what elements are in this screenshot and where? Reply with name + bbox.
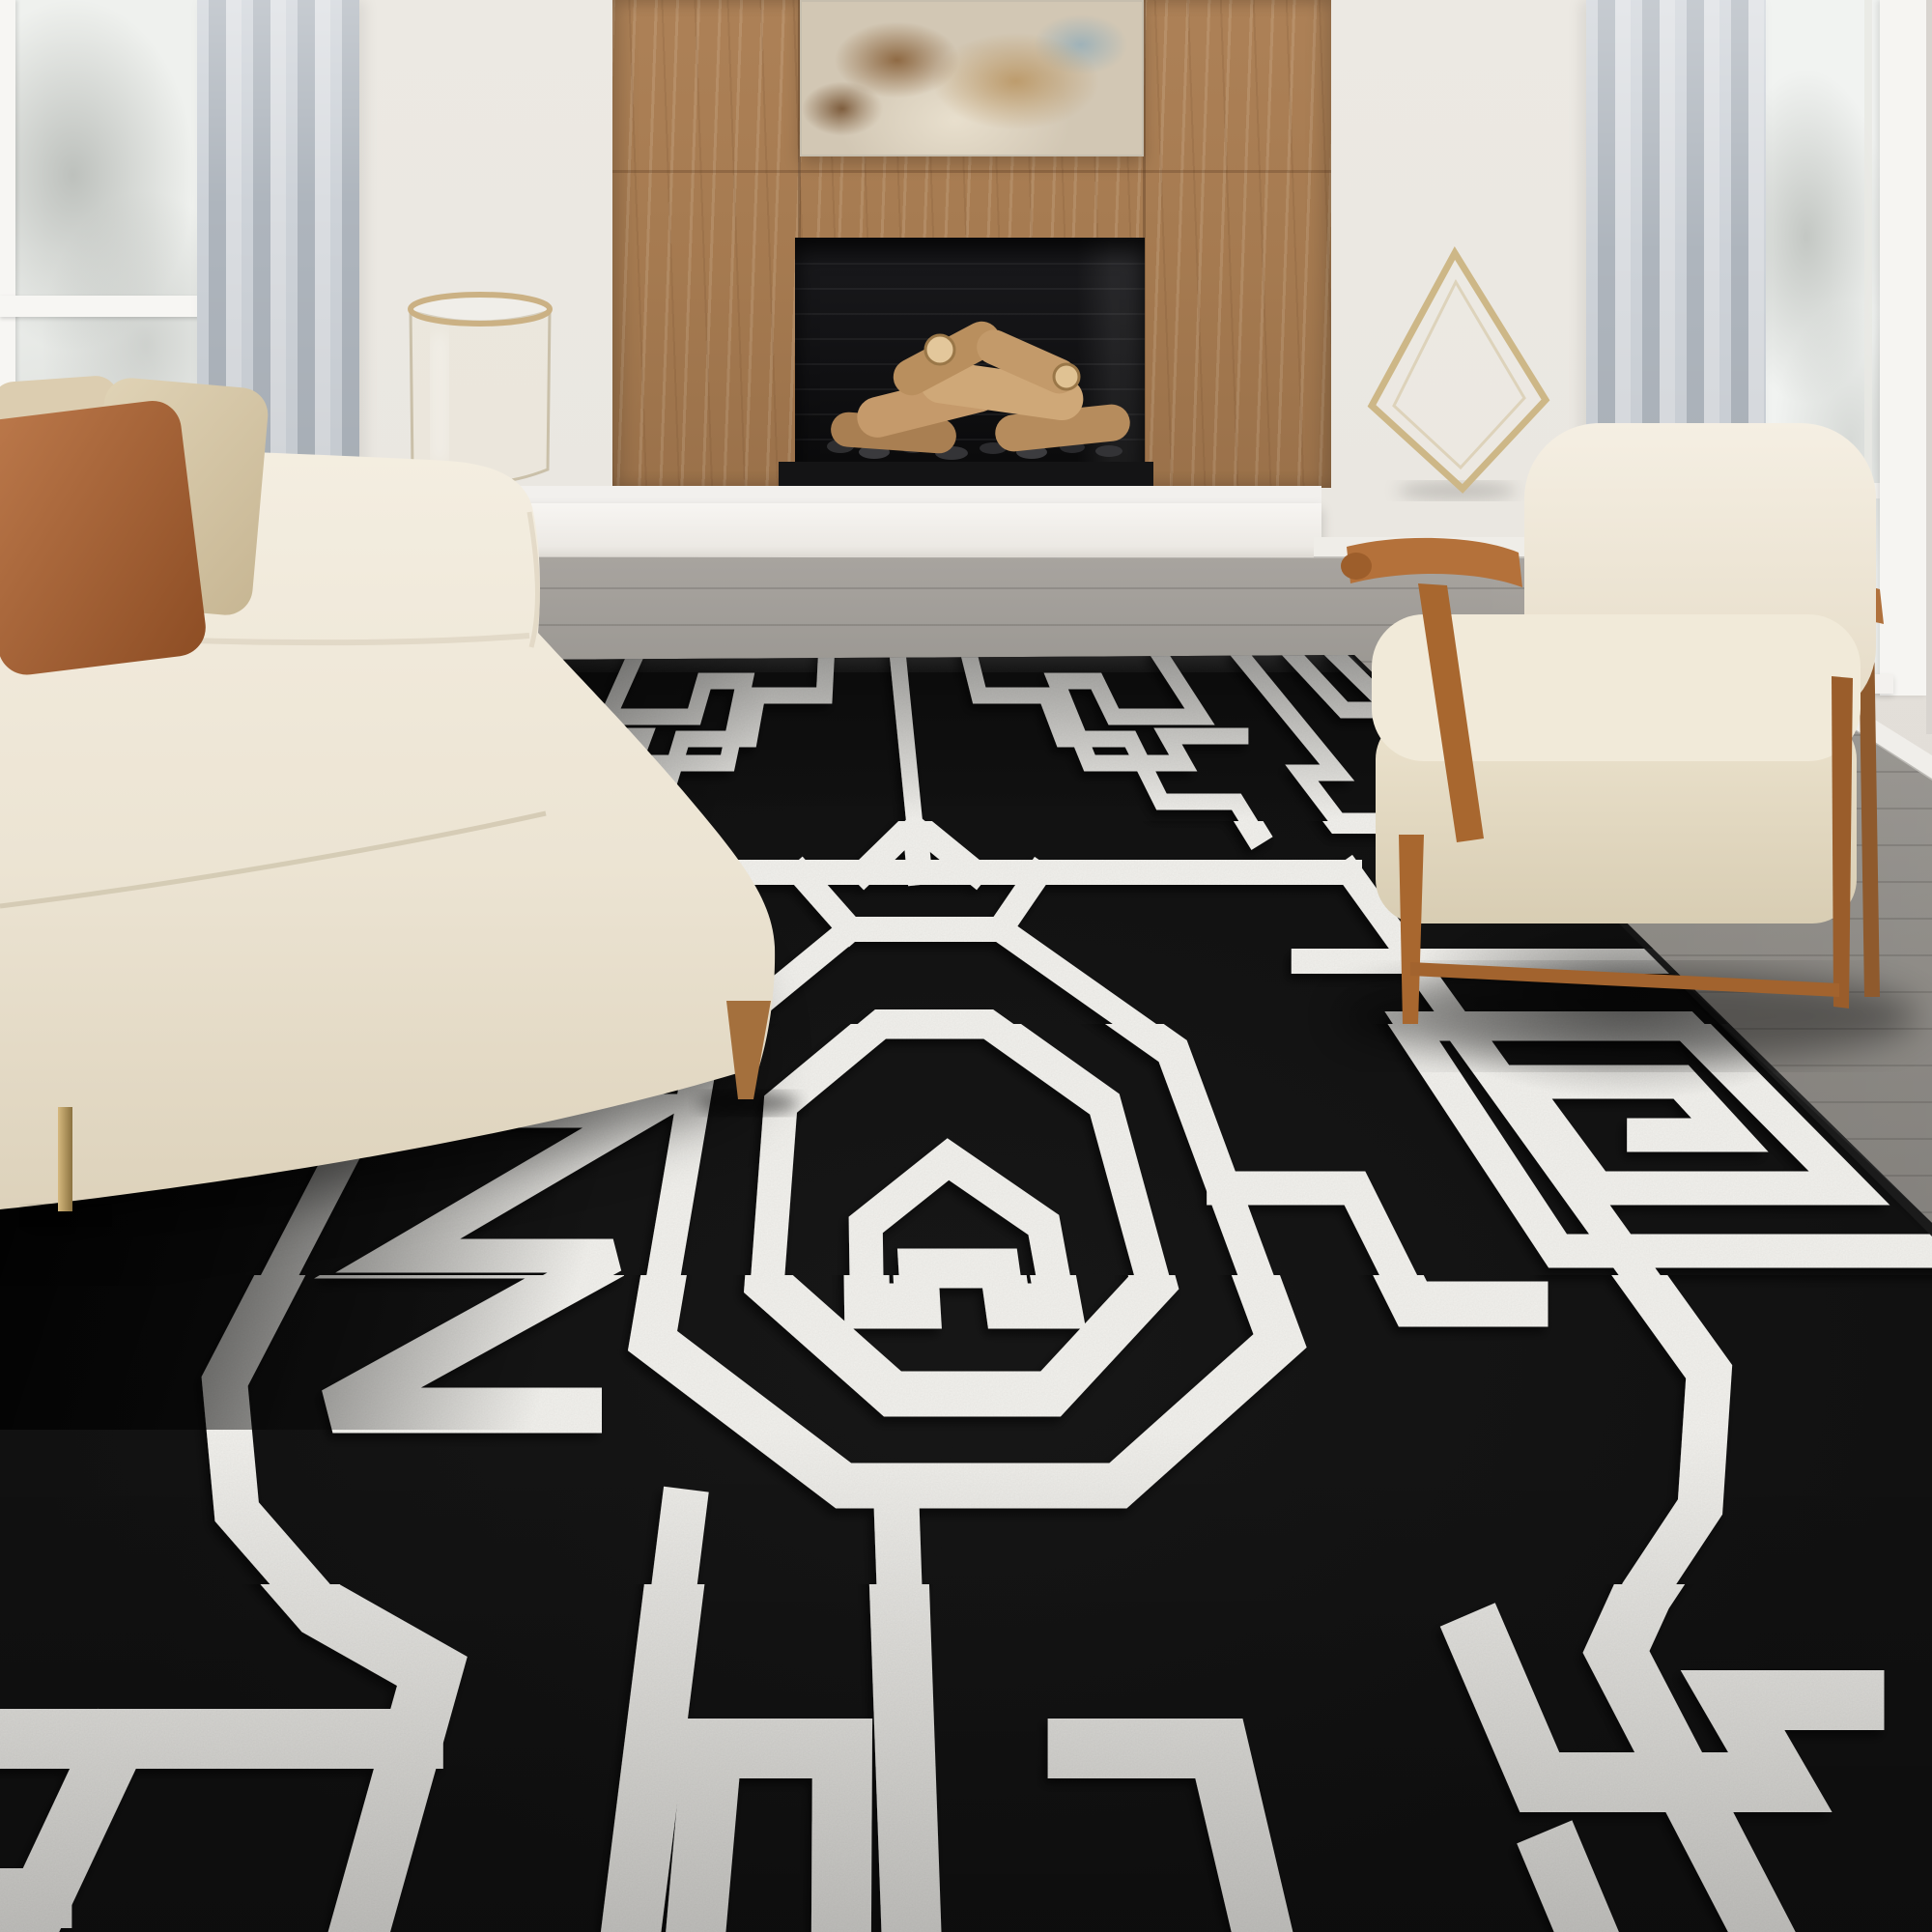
window-right-divider: [1864, 0, 1872, 676]
window-right: [1756, 0, 1882, 676]
bench-front: [0, 503, 1321, 557]
window-left-sash-bar: [0, 296, 209, 317]
window-right-frame: [1880, 0, 1928, 696]
firebox: [795, 238, 1145, 475]
abstract-painting: [800, 0, 1144, 156]
baseboard-back-wall: [1314, 537, 1596, 559]
living-room-photo: [0, 0, 1932, 1932]
hearth-lip: [779, 462, 1153, 489]
wood-seam: [612, 170, 1331, 173]
bench-top: [0, 486, 1321, 503]
window-right-sash-bar: [1756, 483, 1882, 498]
window-right-edge: [1926, 0, 1932, 734]
